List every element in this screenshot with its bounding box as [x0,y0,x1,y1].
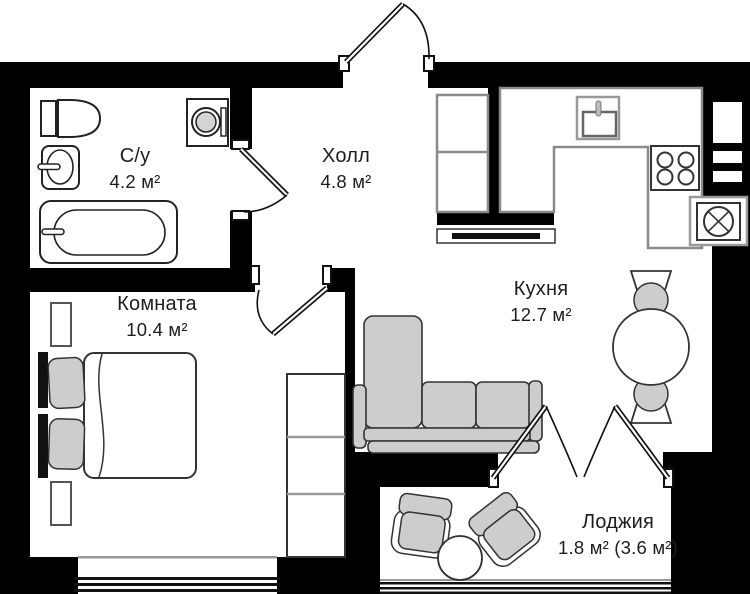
headboard [38,414,48,478]
faucet [596,101,601,116]
room-name: С/у [75,144,195,169]
door-swing-arc [403,4,429,59]
room-label-hall: Холл 4.8 м² [286,144,406,194]
burner [658,170,673,185]
mattress [84,353,196,478]
dining-set [613,271,689,423]
room-area: 12.7 м² [461,302,621,327]
hall-wardrobe [437,95,488,212]
bathtub [40,201,177,263]
doormat [437,229,555,243]
room-name: Кухня [461,277,621,302]
nightstand [51,482,71,525]
room-area: 1.8 м² (3.6 м²) [523,535,713,560]
burner [679,153,694,168]
door-swing-arc [244,195,287,212]
bathroom-door [232,140,287,220]
room-label-loggia: Лоджия 1.8 м² (3.6 м²) [523,510,713,560]
room-label-bathroom: С/у 4.2 м² [75,144,195,194]
room-area: 4.2 м² [75,169,195,194]
cushion [422,382,476,428]
room-label-bedroom: Комната 10.4 м² [77,292,237,342]
headboard [38,352,48,408]
entrance-door [339,4,434,71]
washing-machine [187,99,228,146]
burner [658,153,673,168]
pillow [48,357,86,409]
vent-duct [690,197,747,245]
back [364,428,530,441]
burner [679,170,694,185]
room-name: Комната [77,292,237,317]
bedroom-door [251,266,331,334]
bathroom-sink [38,146,79,189]
faucet [42,229,64,235]
faucet [38,164,60,170]
room-label-kitchen: Кухня 12.7 м² [461,277,621,327]
nightstand [51,303,71,346]
stove [651,146,699,190]
sofa [353,316,542,453]
coffee-table [438,536,482,580]
door-swing-arc [546,406,577,477]
window-bedroom [74,556,280,594]
room-area: 10.4 м² [77,317,237,342]
floor-plan: С/у 4.2 м² Холл 4.8 м² Кухня 12.7 м² Ком… [0,0,750,594]
bedroom-wardrobe [287,374,345,557]
chaise [364,316,422,428]
door-swing-arc [257,290,273,334]
room-name: Холл [286,144,406,169]
kitchen-sink [577,97,619,139]
cushion [476,382,530,428]
door-swing-arc [584,406,615,477]
window-loggia [380,579,671,594]
toilet [41,100,100,137]
dining-table [613,309,689,385]
room-name: Лоджия [523,510,713,535]
pillow [48,418,85,469]
room-area: 4.8 м² [286,169,406,194]
bed [38,352,196,478]
